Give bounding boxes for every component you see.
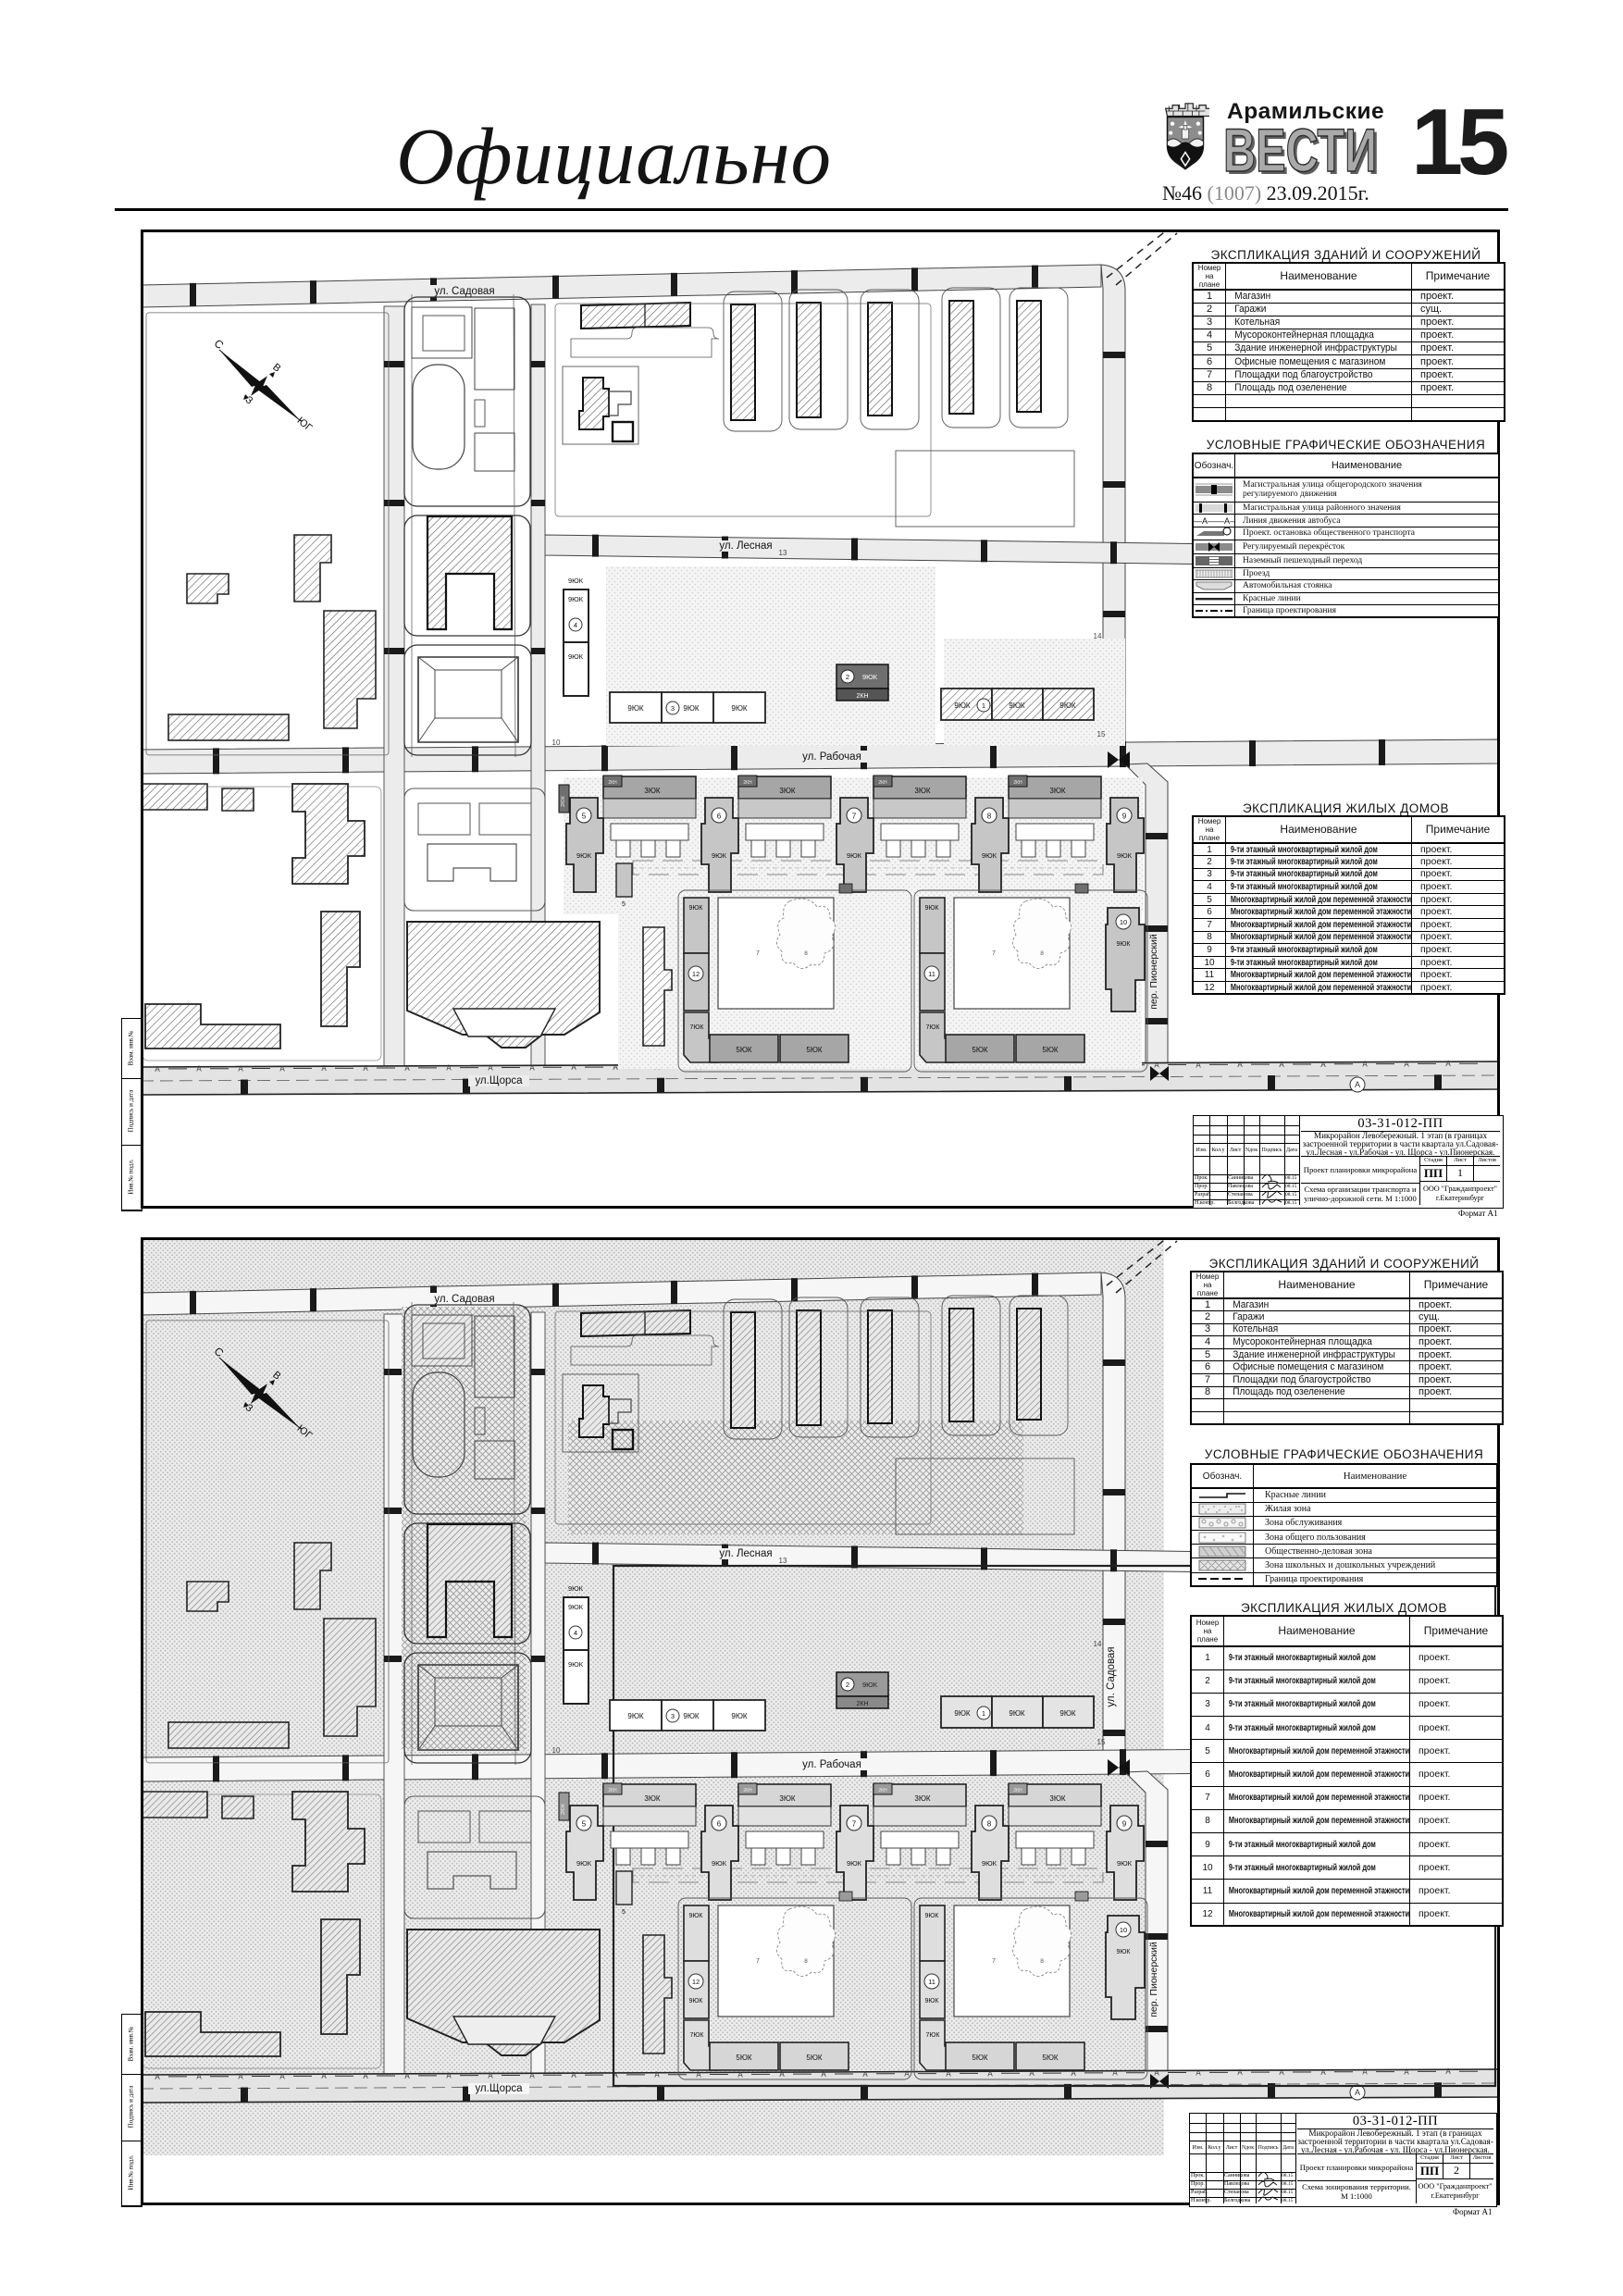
svg-text:15: 15 xyxy=(1097,730,1106,738)
svg-text:ул. Садовая: ул. Садовая xyxy=(434,1294,494,1305)
svg-text:10: 10 xyxy=(552,1746,561,1755)
svg-text:5ЮК: 5ЮК xyxy=(972,2054,988,2062)
svg-text:9ЮК: 9ЮК xyxy=(731,1712,748,1720)
svg-text:В: В xyxy=(270,362,282,375)
svg-text:10: 10 xyxy=(552,738,561,747)
svg-text:9ЮК: 9ЮК xyxy=(683,704,700,713)
svg-text:2КН: 2КН xyxy=(743,780,752,786)
svg-text:10: 10 xyxy=(1120,1926,1127,1934)
svg-text:8: 8 xyxy=(987,1820,992,1829)
svg-text:9ЮК: 9ЮК xyxy=(1059,701,1076,710)
svg-text:7: 7 xyxy=(852,813,857,821)
svg-text:9ЮК: 9ЮК xyxy=(568,1603,584,1611)
svg-text:А: А xyxy=(862,2070,868,2079)
svg-text:4: 4 xyxy=(574,1629,577,1637)
svg-text:7: 7 xyxy=(852,1820,857,1829)
svg-text:6: 6 xyxy=(717,1820,722,1829)
svg-text:14: 14 xyxy=(1094,632,1102,640)
svg-text:А: А xyxy=(1154,2069,1159,2078)
svg-text:С: С xyxy=(212,337,227,353)
svg-text:9: 9 xyxy=(1122,1820,1127,1829)
svg-text:9ЮК: 9ЮК xyxy=(924,1913,939,1919)
svg-text:7: 7 xyxy=(756,950,760,957)
svg-text:А: А xyxy=(779,2070,785,2079)
svg-text:А: А xyxy=(1320,2068,1326,2077)
svg-text:7: 7 xyxy=(756,1958,760,1965)
svg-text:9ЮК: 9ЮК xyxy=(1009,1709,1025,1718)
svg-text:8: 8 xyxy=(804,1958,808,1965)
svg-text:9ЮК: 9ЮК xyxy=(627,704,644,713)
svg-text:7: 7 xyxy=(992,1958,996,1965)
svg-text:3ЮК: 3ЮК xyxy=(914,787,931,795)
svg-text:А: А xyxy=(1445,1060,1451,1068)
svg-text:10: 10 xyxy=(1120,918,1127,926)
svg-text:2КН: 2КН xyxy=(608,1788,617,1793)
svg-text:7ЮК: 7ЮК xyxy=(689,2032,704,2039)
svg-text:3ЮК: 3ЮК xyxy=(644,787,661,795)
svg-text:1: 1 xyxy=(982,1709,985,1718)
svg-text:А: А xyxy=(1196,2068,1201,2077)
svg-text:15: 15 xyxy=(1097,1738,1106,1746)
svg-text:7ЮК: 7ЮК xyxy=(689,1024,704,1031)
svg-text:2КН: 2КН xyxy=(856,693,868,700)
svg-text:9ЮК: 9ЮК xyxy=(568,1660,584,1669)
svg-text:9ЮК: 9ЮК xyxy=(683,1712,700,1720)
svg-text:А: А xyxy=(279,2072,285,2080)
svg-text:А: А xyxy=(1196,1061,1201,1069)
svg-text:1: 1 xyxy=(982,701,985,710)
svg-text:9: 9 xyxy=(1122,813,1127,821)
svg-text:3ЮК: 3ЮК xyxy=(779,1794,796,1803)
svg-text:А: А xyxy=(1404,2067,1409,2076)
svg-text:А: А xyxy=(529,2071,535,2079)
svg-text:2КН: 2КН xyxy=(1013,1788,1022,1793)
svg-text:А: А xyxy=(446,1064,452,1073)
svg-text:А: А xyxy=(1279,1061,1284,1069)
svg-text:12: 12 xyxy=(692,1978,700,1986)
svg-text:А: А xyxy=(238,1065,243,1074)
svg-text:9ЮК: 9ЮК xyxy=(862,1681,878,1689)
svg-text:9ЮК: 9ЮК xyxy=(712,851,727,860)
svg-text:8: 8 xyxy=(987,813,992,821)
svg-text:9ЮК: 9ЮК xyxy=(1117,1859,1133,1868)
svg-text:ул. Лесная: ул. Лесная xyxy=(719,1548,772,1559)
svg-text:3ЮК: 3ЮК xyxy=(914,1794,931,1803)
svg-text:ВЕСТИ: ВЕСТИ xyxy=(1223,126,1377,178)
svg-text:5: 5 xyxy=(622,1909,626,1916)
svg-text:2КН: 2КН xyxy=(856,1701,868,1707)
svg-text:ул. Садовая: ул. Садовая xyxy=(1106,1646,1117,1706)
svg-text:9ЮК: 9ЮК xyxy=(1117,851,1133,860)
svg-text:пер. Пионерский: пер. Пионерский xyxy=(1148,1942,1159,2017)
svg-text:9ЮК: 9ЮК xyxy=(688,905,703,912)
svg-text:9ЮК: 9ЮК xyxy=(924,905,939,912)
svg-text:9ЮК: 9ЮК xyxy=(954,1709,971,1718)
svg-text:6: 6 xyxy=(717,813,722,821)
svg-text:9ЮК: 9ЮК xyxy=(862,673,878,681)
svg-text:2: 2 xyxy=(846,1681,849,1689)
svg-text:9ЮК: 9ЮК xyxy=(688,1913,703,1919)
svg-text:9ЮК: 9ЮК xyxy=(712,1859,727,1868)
svg-text:9ЮК: 9ЮК xyxy=(847,851,862,860)
svg-text:9ЮК: 9ЮК xyxy=(1116,1949,1131,1955)
svg-text:А: А xyxy=(1320,1061,1326,1069)
svg-text:3ЮК: 3ЮК xyxy=(644,1794,661,1803)
svg-text:А: А xyxy=(488,1063,493,1072)
svg-text:А: А xyxy=(238,2073,243,2081)
svg-text:2ЮК: 2ЮК xyxy=(561,1803,566,1815)
svg-text:А: А xyxy=(696,2071,701,2079)
svg-text:5ЮК: 5ЮК xyxy=(972,1046,988,1054)
svg-text:А: А xyxy=(1279,2068,1284,2077)
svg-text:А: А xyxy=(571,1063,576,1072)
svg-text:ул. Лесная: ул. Лесная xyxy=(719,540,772,552)
svg-text:9ЮК: 9ЮК xyxy=(1116,941,1131,948)
svg-text:3ЮК: 3ЮК xyxy=(1049,787,1066,795)
svg-text:7ЮК: 7ЮК xyxy=(925,1024,940,1031)
svg-text:2: 2 xyxy=(846,673,849,681)
svg-text:9ЮК: 9ЮК xyxy=(568,1584,584,1593)
svg-text:12: 12 xyxy=(692,970,700,978)
svg-text:9ЮК: 9ЮК xyxy=(568,595,584,603)
svg-text:7ЮК: 7ЮК xyxy=(925,2032,940,2039)
svg-text:9ЮК: 9ЮК xyxy=(924,1998,939,2004)
svg-text:ул. Рабочая: ул. Рабочая xyxy=(802,751,861,763)
svg-text:А: А xyxy=(196,1065,202,1074)
svg-text:9ЮК: 9ЮК xyxy=(627,1712,644,1720)
svg-text:9ЮК: 9ЮК xyxy=(731,704,748,713)
svg-text:9ЮК: 9ЮК xyxy=(1009,701,1025,710)
svg-text:8: 8 xyxy=(804,950,808,957)
svg-text:А: А xyxy=(1362,2068,1368,2077)
svg-text:А: А xyxy=(1355,2088,1360,2097)
svg-text:А: А xyxy=(488,2071,493,2079)
svg-text:5: 5 xyxy=(582,1820,587,1829)
svg-text:А: А xyxy=(1237,1061,1243,1069)
svg-text:3ЮК: 3ЮК xyxy=(1049,1794,1066,1803)
svg-text:2КН: 2КН xyxy=(743,1788,752,1793)
svg-text:А: А xyxy=(654,2071,660,2079)
svg-text:пер. Пионерский: пер. Пионерский xyxy=(1148,934,1159,1010)
svg-text:9ЮК: 9ЮК xyxy=(982,851,997,860)
svg-text:4: 4 xyxy=(574,621,577,629)
svg-text:А: А xyxy=(404,2072,410,2080)
svg-text:2КН: 2КН xyxy=(878,1788,887,1793)
svg-text:2КН: 2КН xyxy=(608,780,617,786)
svg-text:ул.Щорса: ул.Щорса xyxy=(475,2083,523,2094)
svg-text:А: А xyxy=(321,2072,327,2080)
svg-text:А: А xyxy=(363,2072,368,2080)
svg-text:А: А xyxy=(1404,1060,1409,1068)
svg-text:5ЮК: 5ЮК xyxy=(736,1046,752,1054)
svg-text:13: 13 xyxy=(779,1557,787,1565)
svg-text:5: 5 xyxy=(582,813,587,821)
svg-text:А: А xyxy=(1237,2068,1243,2077)
svg-text:А: А xyxy=(613,1063,618,1072)
svg-text:А: А xyxy=(363,1064,368,1073)
svg-text:А: А xyxy=(571,2071,576,2079)
svg-text:ул. Садовая: ул. Садовая xyxy=(434,286,494,297)
svg-text:А: А xyxy=(737,2070,743,2079)
svg-text:А: А xyxy=(446,2072,452,2080)
svg-text:9ЮК: 9ЮК xyxy=(954,701,971,710)
svg-text:11: 11 xyxy=(928,970,935,978)
svg-text:3ЮК: 3ЮК xyxy=(779,787,796,795)
svg-text:9ЮК: 9ЮК xyxy=(847,1859,862,1868)
svg-text:5ЮК: 5ЮК xyxy=(806,1046,823,1054)
svg-text:3: 3 xyxy=(671,704,675,713)
svg-text:9ЮК: 9ЮК xyxy=(982,1859,997,1868)
svg-text:А: А xyxy=(1154,1061,1159,1070)
svg-text:9ЮК: 9ЮК xyxy=(1059,1709,1076,1718)
svg-text:2ЮК: 2ЮК xyxy=(561,795,566,807)
svg-text:ул. Рабочая: ул. Рабочая xyxy=(802,1759,861,1770)
svg-text:А: А xyxy=(155,1065,160,1074)
svg-text:7: 7 xyxy=(992,950,996,957)
svg-text:А: А xyxy=(821,2070,826,2079)
svg-text:5: 5 xyxy=(622,901,626,908)
svg-text:А: А xyxy=(321,1064,327,1073)
svg-text:А: А xyxy=(196,2073,202,2081)
svg-text:А: А xyxy=(1445,2067,1451,2076)
svg-text:А: А xyxy=(1362,1061,1368,1069)
svg-text:9ЮК: 9ЮК xyxy=(576,851,592,860)
svg-text:13: 13 xyxy=(779,549,787,557)
svg-text:9ЮК: 9ЮК xyxy=(576,1859,592,1868)
svg-text:8: 8 xyxy=(1040,1958,1044,1965)
svg-text:2КН: 2КН xyxy=(1013,780,1022,786)
svg-text:А: А xyxy=(404,1064,410,1073)
svg-text:2КН: 2КН xyxy=(878,780,887,786)
svg-text:А: А xyxy=(1112,2069,1118,2078)
svg-text:5ЮК: 5ЮК xyxy=(1042,1046,1059,1054)
svg-text:А: А xyxy=(155,2073,160,2081)
svg-text:5ЮК: 5ЮК xyxy=(736,2054,752,2062)
svg-text:ул.Щорса: ул.Щорса xyxy=(475,1075,523,1086)
svg-text:9ЮК: 9ЮК xyxy=(568,577,584,585)
svg-text:9ЮК: 9ЮК xyxy=(568,652,584,661)
svg-text:9ЮК: 9ЮК xyxy=(688,1998,703,2004)
svg-text:А: А xyxy=(1355,1080,1360,1089)
svg-text:11: 11 xyxy=(928,1978,935,1986)
svg-text:А: А xyxy=(529,1063,535,1072)
svg-text:5ЮК: 5ЮК xyxy=(1042,2054,1059,2062)
svg-text:А: А xyxy=(279,1064,285,1073)
svg-text:8: 8 xyxy=(1040,950,1044,957)
svg-text:5ЮК: 5ЮК xyxy=(806,2054,823,2062)
svg-text:14: 14 xyxy=(1094,1640,1102,1648)
svg-text:3: 3 xyxy=(671,1712,675,1720)
